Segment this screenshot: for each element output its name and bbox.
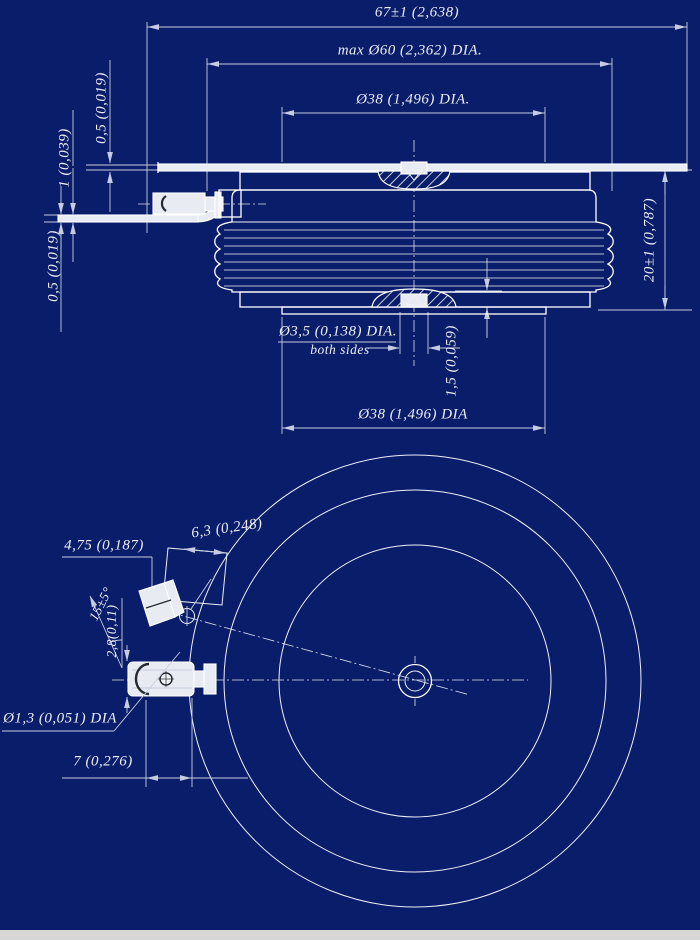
dim-lead-length: 7 (0,276) [73,754,133,771]
terminal-neck [194,671,204,687]
dim-gate-lead-thickness: 1 (0,039) [57,128,74,188]
center-boss-outer [399,665,432,698]
dim-recess-depth: 1,5 (0,059) [444,325,461,397]
dim-top-pole-diameter: Ø38 (1,496) DIA. [356,92,470,109]
extension-lines [44,22,692,434]
dim-hole-diameter: Ø1,3 (0,051) DIA [3,711,117,728]
dim-tube-diameter: 2,8(0,11) [104,605,120,658]
center-boss-inner [405,671,425,691]
bottom-view [2,455,641,907]
dim-terminal-width: 4,75 (0,187) [64,538,144,555]
dim-bottom-lead-thickness: 0,5 (0,019) [46,230,63,302]
top-center-button [401,162,427,174]
bottom-strip [0,930,700,940]
dimension-lines [61,27,687,428]
dim-bottom-pole-diameter: Ø38 (1,496) DIA [358,407,468,424]
gate-lead-strip [58,215,198,222]
center-recess-note: both sides [310,342,369,358]
inner-circle [279,545,551,817]
dim-overall-width: 67±1 (2,638) [375,5,459,22]
blueprint-page: 67±1 (2,638) max Ø60 (2,362) DIA. Ø38 (1… [0,0,700,940]
terminal-cap [204,664,216,694]
middle-circle [224,490,606,872]
gate-connector-body [153,193,205,214]
dim-top-lead-thickness: 0,5 (0,019) [94,72,111,144]
dim-max-diameter: max Ø60 (2,362) DIA. [338,43,483,60]
side-view [44,22,692,434]
dim-center-recess-diameter: Ø3,5 (0,138) DIA. [279,324,397,341]
dim-height: 20±1 (0,787) [642,198,659,282]
gate-pin-tab [215,192,221,218]
